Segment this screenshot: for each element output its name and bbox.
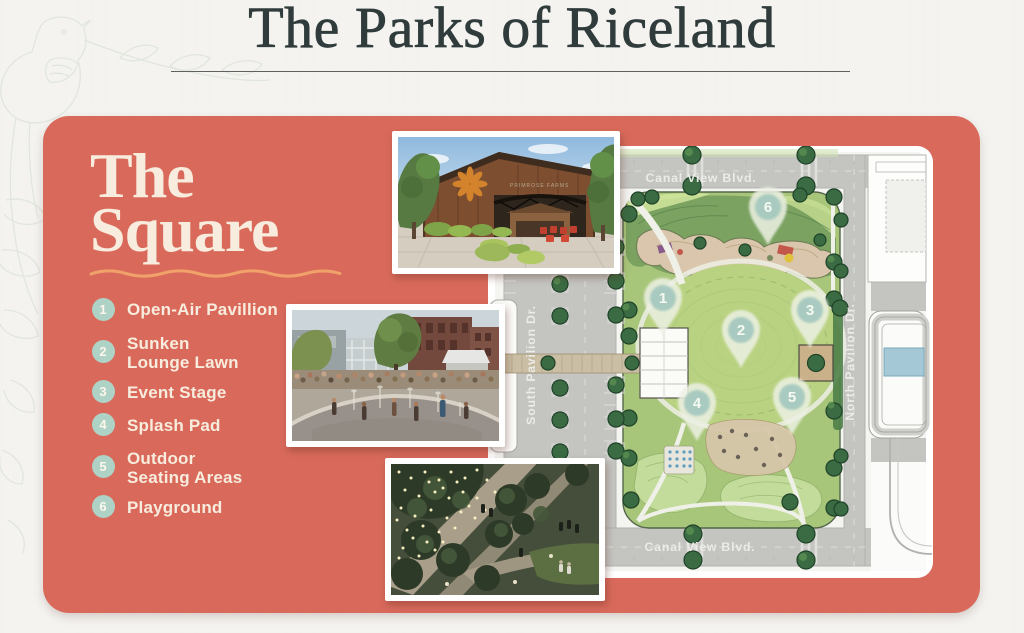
svg-text:3: 3 xyxy=(806,302,814,319)
svg-text:4: 4 xyxy=(693,395,702,412)
svg-text:2: 2 xyxy=(737,322,745,339)
svg-text:1: 1 xyxy=(659,290,667,307)
svg-text:6: 6 xyxy=(764,199,772,216)
svg-text:North Pavilion Dr.: North Pavilion Dr. xyxy=(843,303,857,421)
svg-text:South Pavilion Dr.: South Pavilion Dr. xyxy=(524,305,538,425)
svg-text:Canal View Blvd.: Canal View Blvd. xyxy=(646,171,757,185)
svg-text:5: 5 xyxy=(788,389,796,406)
svg-text:Canal View Blvd.: Canal View Blvd. xyxy=(645,540,756,554)
svg-text:PRIMROSE FARMS: PRIMROSE FARMS xyxy=(510,183,569,189)
